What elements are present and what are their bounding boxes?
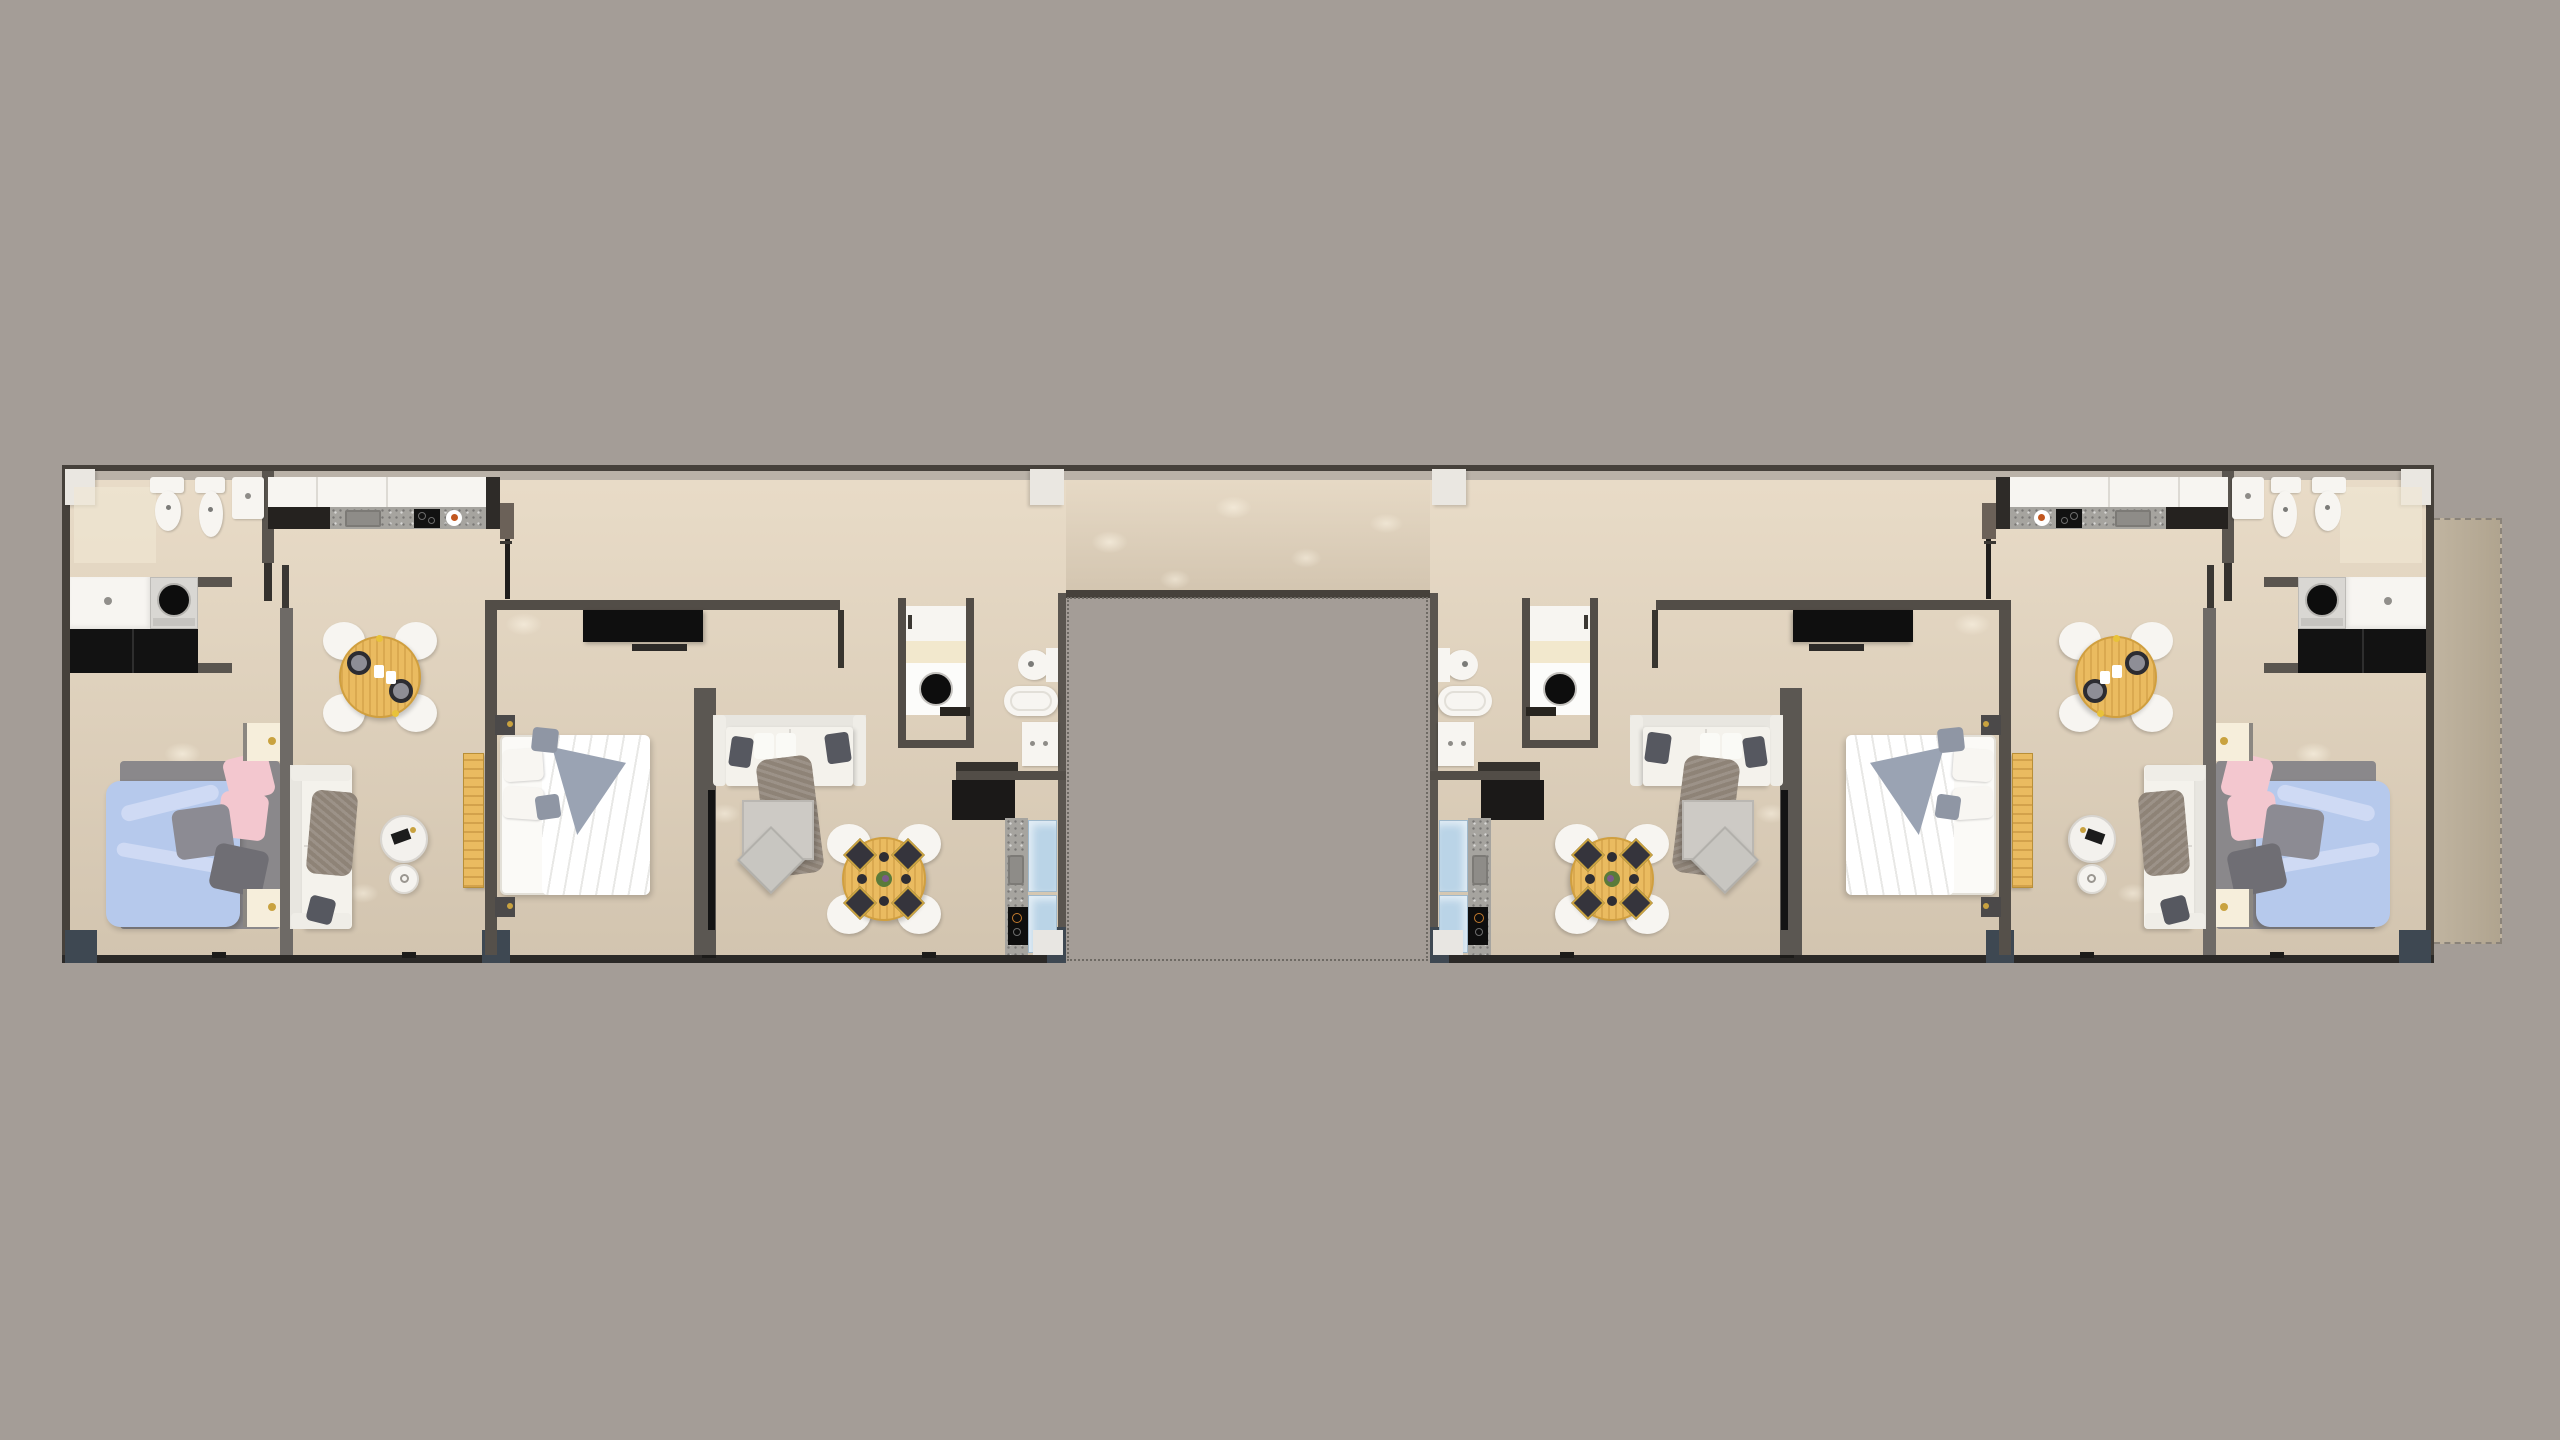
washer-drum (2305, 583, 2339, 617)
bedroom-door-leaf (2207, 565, 2214, 608)
table-deco-dot (2113, 635, 2120, 642)
bedroom-door-leaf (282, 565, 289, 608)
closet-wall (898, 598, 906, 748)
entry-wall-cabinet (1982, 503, 1996, 539)
sofa-throw-blanket (305, 789, 358, 877)
cup (386, 671, 396, 684)
cup (374, 665, 384, 678)
sofa-white-pillow (1722, 733, 1742, 759)
table-cup (879, 852, 889, 862)
kitchen-wall (1430, 771, 1540, 780)
sofa-armrest (853, 715, 866, 786)
toilet-bowl (2315, 491, 2341, 531)
corridor-column (1432, 469, 1466, 505)
entry-door-handle (1984, 541, 1996, 544)
laundry-faucet-dot (2384, 597, 2392, 605)
closet-wall (966, 598, 974, 748)
burner (418, 512, 426, 520)
apartment-top-wall (485, 600, 840, 610)
toilet-flush-dot (166, 505, 171, 510)
center-plant-flower (882, 875, 889, 882)
accent-cushion (1934, 793, 1961, 820)
washer-controls (153, 618, 195, 626)
table-cup (901, 874, 911, 884)
entry-door-leaf (505, 539, 510, 599)
place-setting-plate (2125, 651, 2149, 675)
kitchen-dark-cabinet (268, 507, 330, 529)
washer-drum (157, 583, 191, 617)
cabinet-knob-dot (1461, 741, 1466, 746)
left-wall (62, 465, 70, 963)
courtyard-cutout (1067, 597, 1428, 961)
kitchen-strip-sink (1472, 855, 1488, 885)
terrace (2434, 518, 2502, 944)
apartment-entry-door-leaf (1652, 610, 1658, 668)
kitchen-upper-counter (268, 477, 486, 507)
bathroom-floor (74, 487, 156, 563)
sink-drain-dot (2245, 493, 2251, 499)
glass-cabinet (1439, 820, 1468, 892)
cup (2112, 665, 2122, 678)
accent-cushion (534, 793, 561, 820)
top-wall-face (1066, 471, 1430, 480)
nightstand-lamp (2220, 903, 2228, 911)
closet-wall (1522, 740, 1598, 748)
wall-stop-mark (922, 952, 936, 958)
bidet-bowl (2273, 491, 2297, 537)
kitchen-dark-cabinet (2166, 507, 2228, 529)
white-pillow (1952, 748, 1994, 783)
shower-fitting (908, 615, 912, 629)
bathroom-cabinet (1022, 722, 1058, 766)
closet-shelf (940, 707, 970, 716)
wall-stop-mark (2270, 952, 2284, 958)
cube-lamp-dot (1983, 903, 1989, 909)
kitchen-white-end (1033, 930, 1063, 955)
kitchen-white-end (1433, 930, 1463, 955)
kitchen-strip-sink (1008, 855, 1024, 885)
apartment-top-wall (1656, 600, 2011, 610)
washer-controls (2301, 618, 2343, 626)
soundbar (1809, 644, 1864, 651)
toilet-dot (1462, 661, 1468, 667)
toilet-flush-dot (2325, 505, 2330, 510)
sink-drain-dot (245, 493, 251, 499)
sofa-armrest (291, 765, 351, 781)
table-deco-dot (376, 635, 383, 642)
closet-shelf (1526, 707, 1556, 716)
toilet-bowl (155, 491, 181, 531)
burner (2061, 517, 2068, 524)
table-cup (1629, 874, 1639, 884)
tall-cabinet (486, 477, 500, 529)
table-deco-dot (392, 710, 399, 717)
wall-tv-panel (708, 790, 715, 930)
toilet-tank (1438, 648, 1450, 682)
wood-bench (2012, 753, 2033, 888)
cube-lamp-dot (1983, 721, 1989, 727)
burner (1013, 928, 1021, 936)
corner-accent-block (2399, 930, 2431, 963)
center-plant-flower (1607, 875, 1614, 882)
burner (428, 517, 435, 524)
sofa-armrest (1770, 715, 1783, 786)
bidet-dot (2283, 507, 2288, 512)
wall-stop-mark (1560, 952, 1574, 958)
kitchen-black-counter (1481, 780, 1544, 820)
closet-counter-cream (1530, 641, 1590, 663)
sofa-dark-pillow (824, 731, 852, 764)
left-wall (2426, 465, 2434, 963)
laundry-faucet-dot (104, 597, 112, 605)
breakfast-food (451, 514, 458, 521)
sofa-armrest (713, 715, 726, 786)
entry-wall-cabinet (500, 503, 514, 539)
cabinet-knob-dot (1030, 741, 1035, 746)
floor-plan-canvas (0, 0, 2560, 1440)
cabinet-seam (2362, 629, 2364, 673)
right-wing (1430, 465, 2434, 963)
bathroom-door (2224, 563, 2232, 601)
sofa-throw-blanket (2137, 789, 2190, 877)
cabinet-knob-dot (1448, 741, 1453, 746)
nightstand-lamp (2220, 737, 2228, 745)
accent-cushion (531, 727, 559, 754)
sofa-dark-pillow (1644, 731, 1672, 764)
burner (1475, 928, 1483, 936)
table-cup (1607, 896, 1617, 906)
accent-cushion (1937, 727, 1965, 754)
table-cup (1585, 874, 1595, 884)
place-setting-plate (347, 651, 371, 675)
cube-lamp-dot (507, 903, 513, 909)
closet-wall (1522, 598, 1530, 748)
toilet-tank (1046, 648, 1058, 682)
toilet-dot (1028, 661, 1034, 667)
dreamcatcher-deco (2087, 874, 2096, 883)
bathtub-inner (1444, 691, 1486, 711)
wall-stub (2264, 577, 2298, 587)
wall-stub (2264, 663, 2298, 673)
kitchen-sink (2115, 510, 2151, 527)
tall-cabinet (1996, 477, 2010, 529)
table-cup (857, 874, 867, 884)
wall-stub (198, 577, 232, 587)
corridor-column (1030, 469, 1064, 505)
corridor-strip (1066, 465, 1430, 598)
sofa-armrest (2145, 765, 2205, 781)
kitchen-upper-counter (2010, 477, 2228, 507)
apartment-entry-door-leaf (838, 610, 844, 668)
cube-lamp-dot (507, 721, 513, 727)
burner (2070, 512, 2078, 520)
bidet-bowl (199, 491, 223, 537)
bathroom-door (264, 563, 272, 601)
burner (1474, 913, 1484, 923)
washer-drum (1543, 672, 1577, 706)
sofa-dark-pillow (1742, 736, 1768, 769)
wall-stub (198, 663, 232, 673)
closet-counter-cream (906, 641, 966, 663)
corridor-floor (1066, 465, 1430, 598)
kitchen-black-counter (952, 780, 1015, 820)
corner-accent-block (65, 930, 97, 963)
table-deco-dot (2097, 710, 2104, 717)
nightstand-lamp (268, 903, 276, 911)
wall-stop-mark (212, 952, 226, 958)
soundbar (632, 644, 687, 651)
white-pillow (502, 748, 544, 783)
tv-console (583, 610, 703, 642)
shower-fitting (1584, 615, 1588, 629)
washer-drum (919, 672, 953, 706)
nightstand-lamp (268, 737, 276, 745)
sofa-dark-pillow (728, 736, 754, 769)
entry-door-handle (500, 541, 512, 544)
entry-door-leaf (1986, 539, 1991, 599)
bathtub-inner (1010, 691, 1052, 711)
bidet-dot (208, 507, 213, 512)
tv-console (1793, 610, 1913, 642)
closet-wall (898, 740, 974, 748)
wall-stop-mark (402, 952, 416, 958)
cabinet-seam (132, 629, 134, 673)
cup (2100, 671, 2110, 684)
wall-tv-panel (1781, 790, 1788, 930)
sofa-white-pillow (1700, 733, 1720, 759)
sofa-back (2193, 765, 2206, 929)
table-cup (1607, 852, 1617, 862)
wall-stop-mark (2080, 952, 2094, 958)
glass-cabinet (1028, 820, 1057, 892)
kitchen-sink (345, 510, 381, 527)
breakfast-food (2038, 514, 2045, 521)
side-table-deco-dot (410, 827, 416, 833)
cooktop (2056, 509, 2082, 528)
wood-bench (463, 753, 484, 888)
side-table-deco-dot (2080, 827, 2086, 833)
burner (1012, 913, 1022, 923)
bathroom-cabinet (1438, 722, 1474, 766)
laundry-cabinets (70, 629, 198, 673)
bathroom-floor (2340, 487, 2422, 563)
cabinet-knob-dot (1043, 741, 1048, 746)
closet-wall (1590, 598, 1598, 748)
table-cup (879, 896, 889, 906)
dreamcatcher-deco (400, 874, 409, 883)
sofa-armrest (1630, 715, 1643, 786)
kitchen-wall (956, 771, 1066, 780)
sofa-white-pillow (754, 733, 774, 759)
left-wing (62, 465, 1066, 963)
